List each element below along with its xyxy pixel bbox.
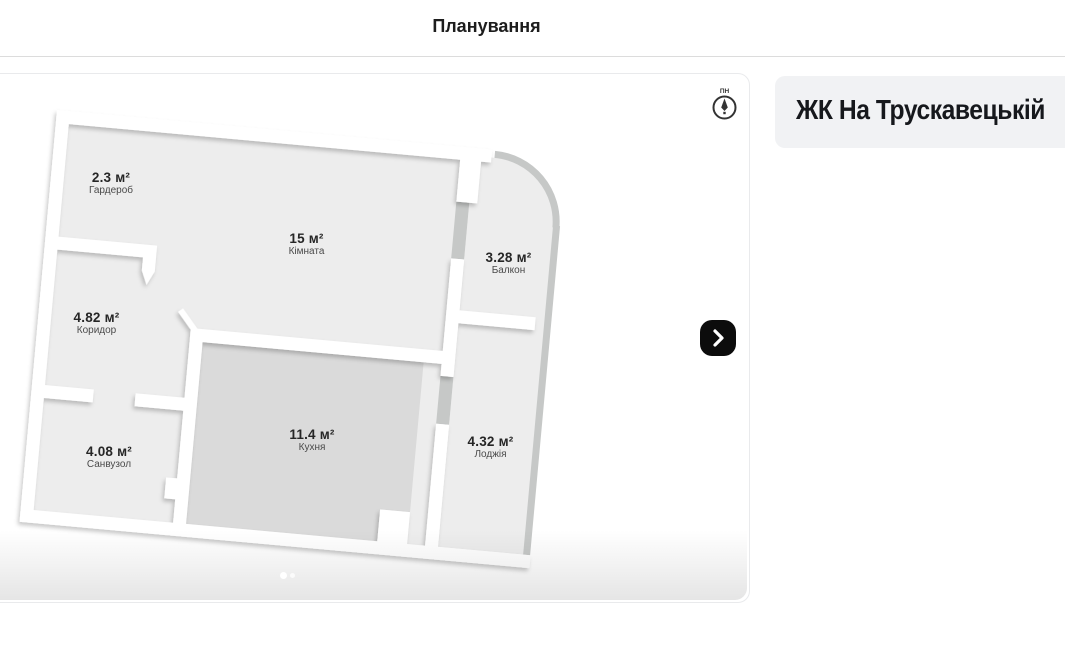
svg-text:ПН: ПН — [720, 88, 730, 95]
